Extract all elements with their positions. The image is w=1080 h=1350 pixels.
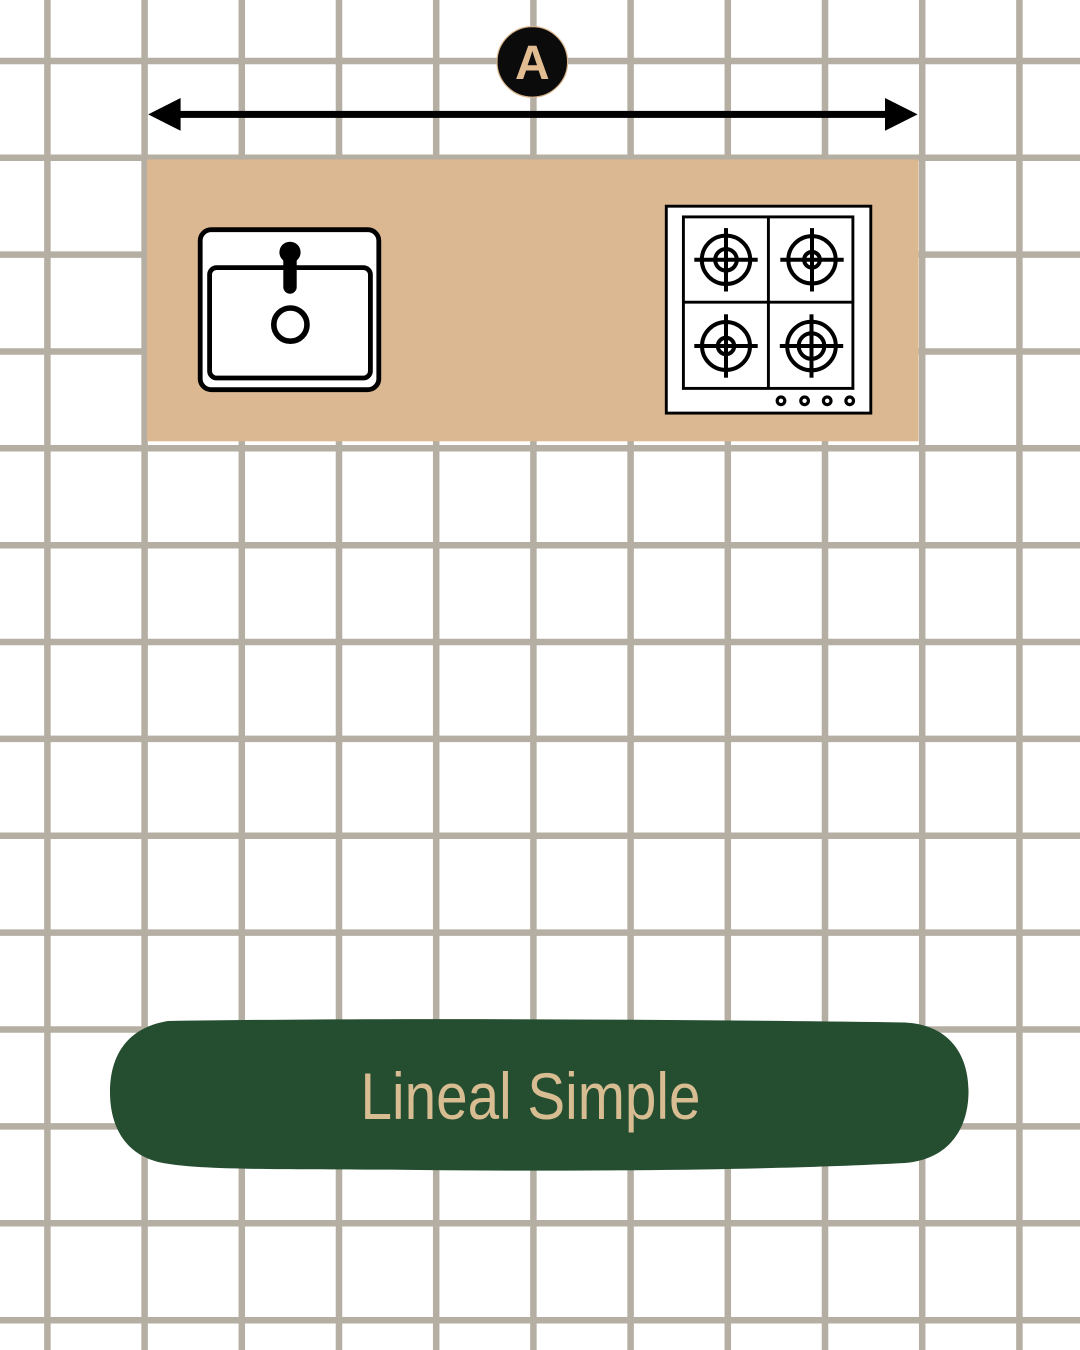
- svg-text:A: A: [515, 37, 550, 90]
- svg-text:Lineal Simple: Lineal Simple: [361, 1059, 701, 1133]
